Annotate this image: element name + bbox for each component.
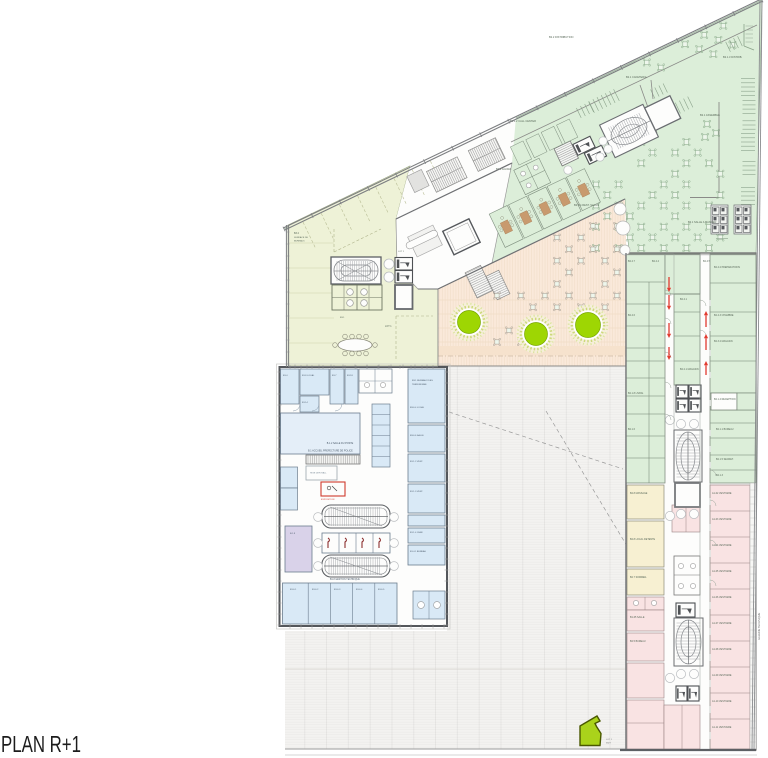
svg-text:B3.1: B3.1 <box>340 317 345 319</box>
svg-text:A1-08 VESTIAIRE: A1-08 VESTIAIRE <box>712 648 732 651</box>
svg-text:B2.4.1: B2.4.1 <box>680 298 688 301</box>
svg-text:B1.14: B1.14 <box>302 402 308 404</box>
svg-text:B2.1.1 BUREAU: B2.1.1 BUREAU <box>716 428 734 431</box>
svg-text:B2.1.8 LIVRAI.: B2.1.8 LIVRAI. <box>628 392 644 395</box>
svg-text:B3.6.4 LOCAL: B3.6.4 LOCAL <box>410 406 425 409</box>
svg-text:B1.8 GESTION TECHNIQUE: B1.8 GESTION TECHNIQUE <box>330 579 360 581</box>
svg-text:B2.4.5: B2.4.5 <box>703 260 711 263</box>
svg-text:B2.8 MASSAGE: B2.8 MASSAGE <box>630 492 648 495</box>
svg-text:A1-05 VESTIAIRE: A1-05 VESTIAIRE <box>712 570 732 573</box>
svg-text:B1.6.1: B1.6.1 <box>290 589 297 591</box>
svg-text:B2.1.6: B2.1.6 <box>628 428 636 431</box>
svg-text:B2.8 LOCAL DETENTE: B2.8 LOCAL DETENTE <box>630 538 656 541</box>
svg-text:B1.8 LOCAL: B1.8 LOCAL <box>302 374 315 377</box>
svg-text:B1.1.3 VEST.: B1.1.3 VEST. <box>410 491 423 493</box>
svg-text:B1-05 SALLE: B1-05 SALLE <box>630 616 645 619</box>
svg-text:B2.1 SALLE A MANGER: B2.1 SALLE A MANGER <box>688 220 717 224</box>
svg-text:B1.1.2 VEST.: B1.1.2 VEST. <box>410 461 423 463</box>
svg-text:B1.4: B1.4 <box>283 375 288 377</box>
svg-text:A1-09 VESTIAIRE: A1-09 VESTIAIRE <box>712 674 732 677</box>
svg-text:B2.7 SOMMEIL: B2.7 SOMMEIL <box>630 576 647 579</box>
svg-text:B2.4.2 PREPARATIONS: B2.4.2 PREPARATIONS <box>714 266 740 269</box>
svg-text:B2.4.7: B2.4.7 <box>628 260 636 263</box>
svg-text:A1-06 VESTIAIRE: A1-06 VESTIAIRE <box>712 596 732 599</box>
svg-text:B2.1.3: B2.1.3 <box>716 474 724 477</box>
svg-text:A1-03 VESTIAIRE: A1-03 VESTIAIRE <box>712 518 732 521</box>
svg-text:GALERIE TECHNIQUE: GALERIE TECHNIQUE <box>757 613 761 640</box>
svg-text:B2.1.3 DISTRIB.: B2.1.3 DISTRIB. <box>723 55 742 59</box>
svg-text:A1-02 VESTIAIRE: A1-02 VESTIAIRE <box>712 492 732 495</box>
svg-text:MC: MC <box>679 390 683 394</box>
svg-text:B1.6.2: B1.6.2 <box>312 589 319 591</box>
svg-text:B2.2 DISTRIBUTION: B2.2 DISTRIBUTION <box>549 35 573 39</box>
svg-text:SURFACE DE: SURFACE DE <box>294 236 309 239</box>
svg-text:B2.4.4: B2.4.4 <box>652 260 660 263</box>
svg-text:3827: 3827 <box>606 743 612 745</box>
svg-text:A1-07 VESTIAIRE: A1-07 VESTIAIRE <box>712 622 732 625</box>
svg-text:B2.1.5 SECRET.: B2.1.5 SECRET. <box>716 458 734 461</box>
svg-text:B2.1 CAFETERIA: B2.1 CAFETERIA <box>626 75 647 79</box>
svg-text:B.1 ACCUEIL PREFECTURE DE POL: B.1 ACCUEIL PREFECTURE DE POLICE <box>308 450 353 453</box>
svg-text:B1.6.3: B1.6.3 <box>334 589 341 591</box>
svg-text:B1.7: B1.7 <box>332 375 337 377</box>
svg-text:B2.4.6: B2.4.6 <box>628 314 636 317</box>
svg-text:A1-04 VESTIAIRE: A1-04 VESTIAIRE <box>712 544 732 547</box>
svg-text:B2.1 ASSEMBLE: B2.1 ASSEMBLE <box>700 113 720 117</box>
svg-text:HIGE DER HALL: HIGE DER HALL <box>310 472 327 475</box>
svg-text:A1-10 VESTIAIRE: A1-10 VESTIAIRE <box>712 700 732 703</box>
svg-text:B2.5.4 REST. SALON: B2.5.4 REST. SALON <box>574 203 599 207</box>
svg-text:B1.1.4 CHEF: B1.1.4 CHEF <box>410 532 424 534</box>
svg-text:B1.6.4: B1.6.4 <box>356 589 363 591</box>
svg-text:BUREAUX: BUREAUX <box>294 240 305 243</box>
svg-text:B.1.2 SALLE DU POSTE: B.1.2 SALLE DU POSTE <box>327 442 354 445</box>
svg-text:B2.1.4 RECEPTION: B2.1.4 RECEPTION <box>714 398 736 401</box>
svg-text:PLAN R+1: PLAN R+1 <box>1 731 81 757</box>
svg-text:B2.5 BUREAU: B2.5 BUREAU <box>630 640 646 643</box>
svg-text:TERRORISME: TERRORISME <box>412 384 427 386</box>
svg-text:LOT 1: LOT 1 <box>606 739 613 741</box>
svg-text:B1.18: B1.18 <box>347 375 353 377</box>
svg-text:B1.4.1 BUREAU: B1.4.1 BUREAU <box>410 550 426 553</box>
svg-text:B3.2: B3.2 <box>294 232 300 235</box>
svg-text:EXPOSITION: EXPOSITION <box>321 499 335 501</box>
svg-text:B.1.9: B.1.9 <box>290 533 296 535</box>
svg-text:LOT 1: LOT 1 <box>398 251 405 253</box>
svg-text:B2.3.2 MAGASIN: B2.3.2 MAGASIN <box>714 340 733 343</box>
svg-text:B2.4.3 CHAMBRE: B2.4.3 CHAMBRE <box>714 314 734 317</box>
svg-text:LOT 1: LOT 1 <box>385 325 392 328</box>
svg-text:B1.6.5: B1.6.5 <box>378 589 385 591</box>
svg-text:B2.2.1 MAGASIN: B2.2.1 MAGASIN <box>680 368 699 371</box>
svg-text:B3.6.6 SALLE: B3.6.6 SALLE <box>410 434 424 437</box>
svg-text:A1-11 VESTIAIRE: A1-11 VESTIAIRE <box>712 726 732 729</box>
svg-text:B3.1 BUREAUX DES: B3.1 BUREAUX DES <box>412 379 433 382</box>
